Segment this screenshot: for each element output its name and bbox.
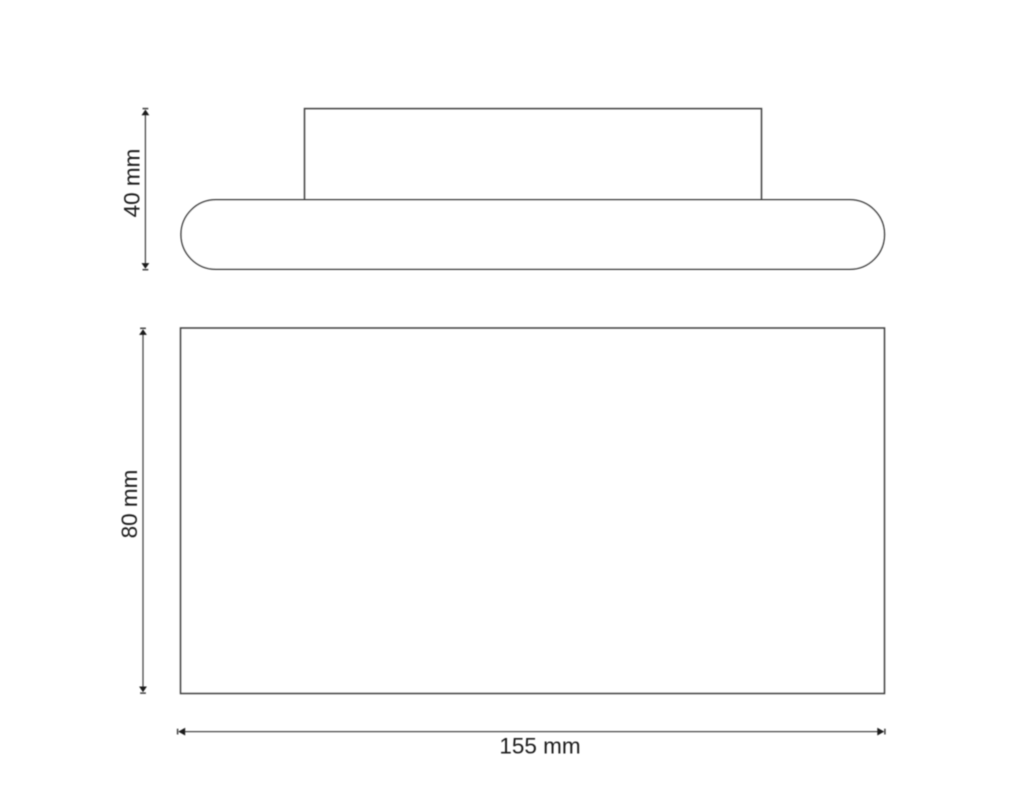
svg-text:155 mm: 155 mm (499, 734, 580, 759)
svg-text:80 mm: 80 mm (117, 470, 142, 539)
svg-text:40 mm: 40 mm (119, 149, 144, 218)
